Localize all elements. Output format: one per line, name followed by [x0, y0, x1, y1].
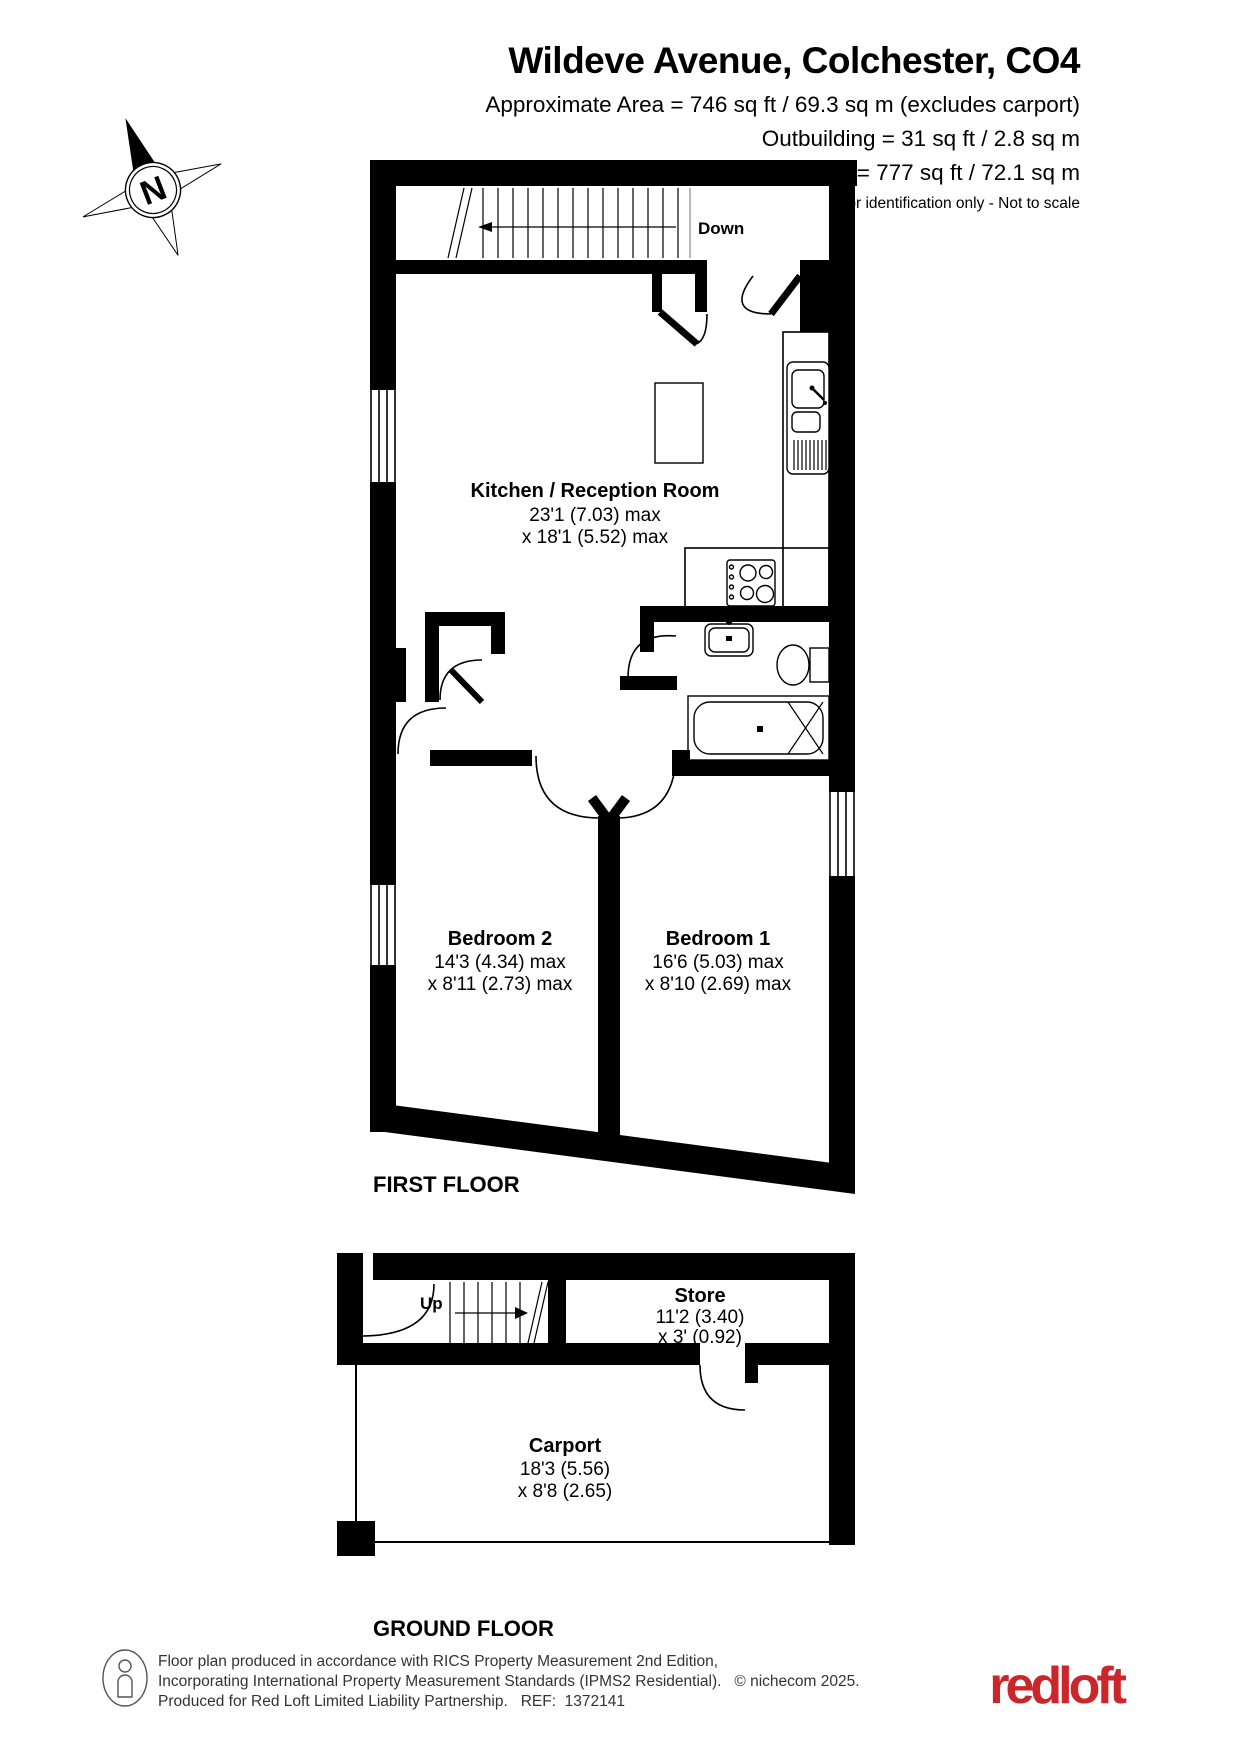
bedroom1-name: Bedroom 1: [666, 928, 770, 950]
store-label: Store 11'2 (3.40) x 3' (0.92): [656, 1285, 745, 1348]
window-bedroom1-right: [829, 792, 855, 876]
person-badge-icon: [103, 1650, 147, 1706]
redloft-logo: redloft: [989, 1656, 1123, 1716]
footer-disclaimer: Floor plan produced in accordance with R…: [158, 1652, 860, 1712]
bedroom2-dim2: x 8'11 (2.73) max: [428, 974, 573, 995]
kitchen-entry-doors: [396, 260, 829, 344]
staircase-ground-floor: [450, 1282, 548, 1343]
store-dim1: 11'2 (3.40): [656, 1307, 745, 1328]
bathroom-toilet: [777, 645, 829, 685]
kitchen-island: [655, 383, 703, 463]
bedroom1-label: Bedroom 1 16'6 (5.03) max x 8'10 (2.69) …: [645, 928, 792, 995]
hallway-and-bedroom-walls: [370, 612, 855, 1142]
store-name: Store: [674, 1285, 725, 1307]
kitchen-dim1: 23'1 (7.03) max: [529, 505, 661, 526]
kitchen-sink: [787, 362, 829, 474]
bedroom1-dim2: x 8'10 (2.69) max: [645, 974, 792, 995]
window-bedroom2-left: [370, 885, 396, 965]
first-floor-plan: Down: [370, 160, 857, 1197]
store-door-arc: [700, 1365, 745, 1410]
ground-floor-plan: Up Store 11'2 (3.40) x 3' (0.92) Carport…: [337, 1253, 855, 1641]
bathroom-bath: [688, 696, 829, 760]
ground-floor-walls: [337, 1253, 855, 1556]
first-floor-label: FIRST FLOOR: [373, 1172, 520, 1197]
stairs-down-label: Down: [698, 219, 744, 238]
kitchen-hob: [727, 560, 775, 606]
stairs-up-label: Up: [420, 1294, 443, 1313]
bathroom-basin: [705, 619, 753, 656]
compass-icon: N: [55, 92, 246, 282]
bedroom1-dim1: 16'6 (5.03) max: [652, 952, 784, 973]
bathroom: [620, 606, 829, 760]
carport-name: Carport: [529, 1435, 602, 1457]
window-kitchen-left: [370, 390, 396, 482]
floorplan-page: Wildeve Avenue, Colchester, CO4 Approxim…: [0, 0, 1241, 1755]
bedroom2-label: Bedroom 2 14'3 (4.34) max x 8'11 (2.73) …: [428, 928, 573, 995]
ground-floor-label: GROUND FLOOR: [373, 1616, 554, 1641]
footer-line1: Floor plan produced in accordance with R…: [158, 1652, 860, 1672]
footer-line2: Incorporating International Property Mea…: [158, 1672, 860, 1692]
kitchen-name: Kitchen / Reception Room: [471, 480, 720, 502]
store-dim2: x 3' (0.92): [658, 1327, 742, 1348]
footer-line3: Produced for Red Loft Limited Liability …: [158, 1692, 860, 1712]
staircase-first-floor: [448, 188, 690, 258]
carport-dim2: x 8'8 (2.65): [518, 1481, 612, 1502]
bedroom2-dim1: 14'3 (4.34) max: [434, 952, 566, 973]
carport-dim1: 18'3 (5.56): [520, 1459, 610, 1480]
kitchen-label: Kitchen / Reception Room 23'1 (7.03) max…: [471, 480, 720, 548]
bedroom2-name: Bedroom 2: [448, 928, 552, 950]
kitchen-dim2: x 18'1 (5.52) max: [522, 527, 669, 548]
carport-label: Carport 18'3 (5.56) x 8'8 (2.65): [518, 1435, 612, 1502]
floorplan-drawing: N: [0, 0, 1241, 1755]
